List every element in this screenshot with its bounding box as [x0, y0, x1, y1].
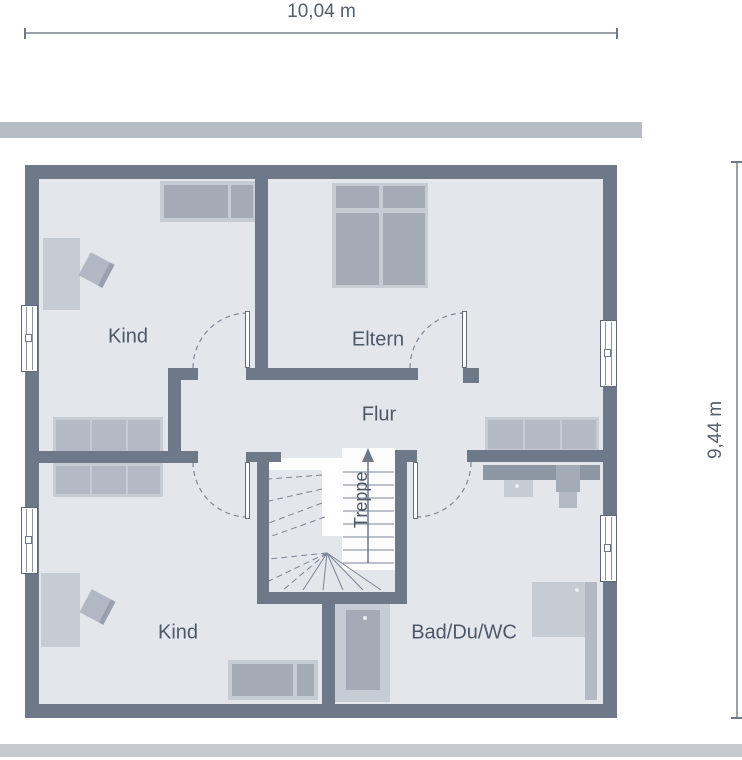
wall-stub [463, 368, 479, 383]
window-frame-line [32, 307, 33, 370]
bed-pillow [336, 186, 379, 208]
door-leaf [245, 462, 250, 519]
bed-pillow [383, 186, 425, 208]
room-label-bad: Bad/Du/WC [411, 622, 517, 645]
desk [43, 238, 80, 310]
window [21, 507, 38, 574]
dimension-tick [616, 28, 618, 39]
bed-mattress [232, 664, 293, 696]
dimension-width-line [25, 32, 618, 34]
room-label-eltern: Eltern [352, 329, 404, 352]
window-handle [25, 536, 32, 544]
room-label-flur: Flur [362, 404, 396, 427]
closet-door [525, 420, 560, 449]
wall-bad-top [467, 450, 603, 462]
dimension-tick [24, 28, 26, 39]
stair-wall-stub-right [395, 450, 417, 462]
dimension-height-line [736, 162, 738, 719]
sink [504, 480, 533, 497]
room-label-kind-top: Kind [108, 326, 148, 349]
door-leaf [413, 462, 418, 519]
vanity-counter [483, 465, 600, 480]
door-leaf [462, 311, 467, 368]
bed-mattress [336, 213, 379, 285]
closet-door [562, 420, 596, 449]
dimension-tick [731, 161, 742, 163]
window-frame-line [611, 322, 612, 385]
wall-divider-kind-eltern [255, 179, 268, 380]
window [21, 305, 38, 372]
roof-band-bottom [0, 744, 742, 757]
bathtub-drain [363, 616, 367, 620]
desk [41, 573, 80, 647]
dimension-height-label: 9,44 m [705, 401, 727, 459]
door-leaf [245, 311, 250, 368]
toilet-tank [556, 465, 580, 492]
bathtub-basin [346, 610, 380, 690]
wardrobe-door [128, 466, 160, 494]
stair-wall-right [395, 452, 407, 604]
bed-pillow [297, 664, 314, 696]
wardrobe-door [92, 466, 126, 494]
bed-mattress [383, 213, 425, 285]
bed-mattress [164, 185, 228, 218]
wall-flur-left [168, 368, 181, 463]
dimension-width-label: 10,04 m [25, 1, 618, 23]
window-frame-line [32, 509, 33, 572]
wardrobe-door [56, 420, 90, 452]
window-handle [25, 334, 32, 342]
window [600, 515, 617, 582]
floor-plan: Treppe Kind Eltern Flur Kind Bad/ [25, 165, 617, 718]
bed-pillow [231, 185, 253, 218]
closet-door [488, 420, 523, 449]
wardrobe-door [56, 466, 90, 494]
stair-wall-left [257, 452, 269, 604]
wall-divider-kind-bad [322, 598, 335, 704]
room-label-kind-bottom: Kind [158, 622, 198, 645]
towel-radiator [585, 582, 597, 700]
dimension-tick [731, 717, 742, 719]
window-handle [604, 349, 611, 357]
shower-drain [575, 588, 579, 592]
wall-kind-bottom-top [39, 451, 198, 463]
sink-drain [515, 484, 519, 488]
window [600, 320, 617, 387]
toilet-bowl [559, 492, 577, 508]
window-handle [604, 544, 611, 552]
wardrobe-door [128, 420, 160, 452]
roof-band-top [0, 122, 642, 138]
window-frame-line [611, 517, 612, 580]
wardrobe-door [92, 420, 126, 452]
wall-flur-top [246, 368, 418, 380]
